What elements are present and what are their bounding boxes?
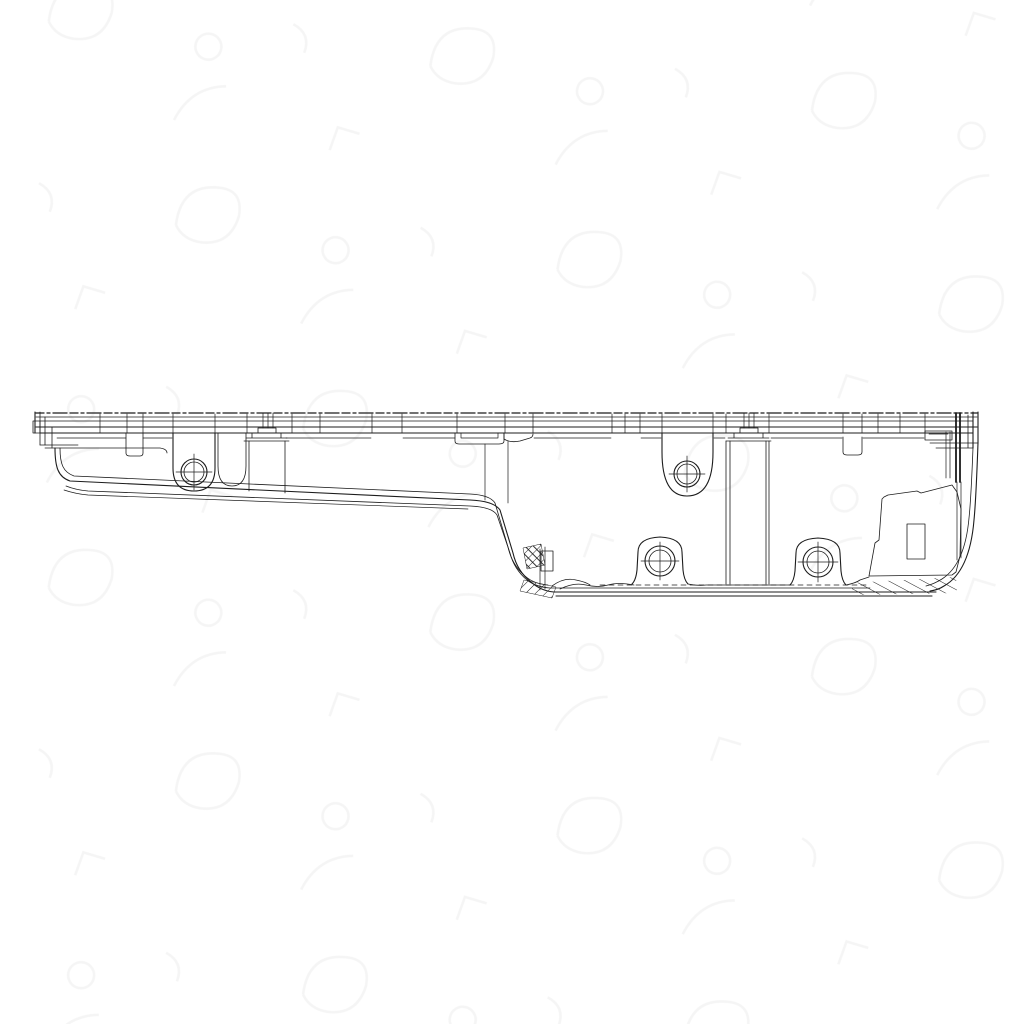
oil-pan-drawing	[0, 0, 1024, 1024]
watermark-pattern	[0, 0, 1024, 1024]
drawing-canvas	[0, 0, 1024, 1024]
